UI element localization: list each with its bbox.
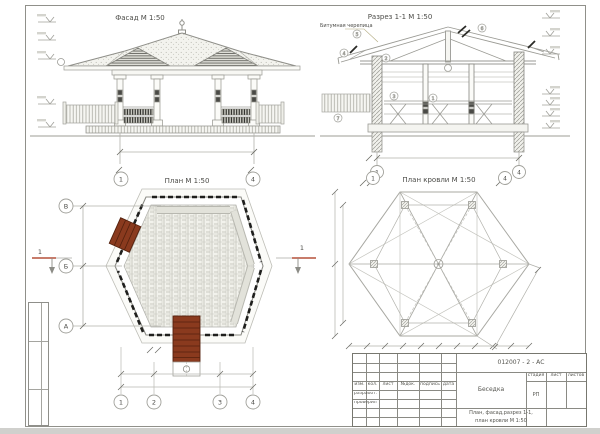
tb-sheets-label: листов: [566, 372, 586, 381]
tb-sheet-label: лист: [546, 372, 566, 381]
svg-text:Б: Б: [64, 263, 68, 271]
interior-rails: [382, 72, 514, 82]
svg-text:А: А: [64, 323, 69, 331]
tb-stage-value: РП: [526, 381, 546, 408]
tb-role-developed: разработ.: [354, 392, 397, 400]
section-view: Разрез 1-1 М 1:50 Битумная черепица: [320, 6, 570, 186]
tb-line: [29, 341, 48, 342]
tb-line: [353, 363, 456, 364]
tb-header-podp: подпись: [419, 381, 441, 390]
svg-text:1: 1: [371, 175, 375, 182]
tb-project-name: Беседка: [456, 372, 526, 408]
svg-text:В: В: [64, 203, 68, 211]
section-cut-marks: [350, 26, 535, 53]
title-block: изм. кол. лист №док. подпись дата разраб…: [352, 353, 587, 427]
tb-line: [353, 417, 456, 418]
plan-view: 1 4 План М 1:50: [30, 166, 320, 418]
facade-view: Фасад М 1:50: [30, 6, 315, 168]
plan-title: План М 1:50: [165, 177, 210, 185]
elevation-markers: [542, 10, 560, 128]
material-callout-leader: [345, 29, 378, 42]
svg-text:1: 1: [432, 96, 435, 102]
tb-line: [353, 372, 456, 373]
tb-line: [29, 389, 48, 390]
tb-header-data: дата: [441, 381, 456, 390]
roof-dimensions: [332, 189, 541, 350]
facade-dimension: [117, 133, 257, 164]
stair-bottom: [173, 316, 200, 376]
tb-header-kol: кол.: [366, 381, 379, 390]
stylobate: [86, 126, 280, 133]
svg-text:2: 2: [152, 399, 156, 407]
row-bubble-b: Б: [59, 259, 73, 273]
svg-text:3: 3: [393, 94, 396, 100]
drawing-sheet: Фасад М 1:50: [0, 0, 600, 434]
section-title: Разрез 1-1 М 1:50: [368, 13, 433, 21]
tb-header-dok: №док.: [397, 381, 419, 390]
section-dimension: [366, 152, 522, 165]
svg-text:4: 4: [503, 175, 507, 182]
svg-text:6: 6: [481, 26, 484, 32]
roof-plan-title: План кровли М 1:50: [402, 176, 475, 184]
col-bubble-4: 4: [246, 395, 260, 409]
elevation-markers: [37, 14, 56, 127]
col-bubble-3: 3: [213, 395, 227, 409]
section-cut-right: 1: [276, 244, 316, 274]
eave-scroll: [58, 59, 65, 66]
svg-text:1: 1: [300, 244, 304, 252]
tb-line: [41, 303, 42, 425]
svg-text:7: 7: [337, 116, 340, 122]
sheet-bottom-shadow: [0, 428, 600, 434]
balustrade-panels: [123, 107, 251, 123]
svg-text:1: 1: [119, 176, 123, 184]
side-stamp: [28, 302, 49, 426]
roof-finial: [179, 19, 186, 33]
tb-header-list: лист: [379, 381, 397, 390]
roof-plan-view: 1 4 План кровли М 1:50: [322, 168, 578, 354]
facade-title: Фасад М 1:50: [115, 14, 165, 22]
row-bubble-a: А: [59, 319, 73, 333]
svg-text:3: 3: [218, 399, 222, 407]
benches: [384, 101, 512, 124]
tb-doc-code: 012007 - 2 - АС: [456, 354, 586, 372]
tb-header-izm: изм.: [353, 381, 366, 390]
tb-stage-label: стадия: [526, 372, 546, 381]
tb-line: [353, 390, 456, 391]
floor-slab: [368, 124, 528, 132]
architrave: [112, 70, 262, 75]
hanging-lamp: [445, 65, 452, 72]
svg-text:4: 4: [343, 51, 346, 57]
facade-roof: [58, 33, 301, 70]
svg-text:4: 4: [251, 176, 255, 184]
tb-sheet-title-line2: план кровли М 1:50: [456, 416, 546, 425]
svg-text:1: 1: [119, 399, 123, 407]
roof-truss: [338, 27, 559, 72]
material-callout-label: Битумная черепица: [320, 23, 373, 29]
row-bubble-v: В: [59, 199, 73, 213]
tb-role-checked: проверил: [354, 401, 397, 409]
foundations: [372, 132, 524, 152]
fence-wing: [322, 94, 370, 112]
svg-text:5: 5: [356, 32, 359, 38]
col-bubble-1: 1: [114, 395, 128, 409]
svg-text:4: 4: [251, 399, 255, 407]
svg-text:2: 2: [385, 56, 388, 62]
svg-text:1: 1: [38, 248, 42, 256]
col-bubble-2: 2: [147, 395, 161, 409]
